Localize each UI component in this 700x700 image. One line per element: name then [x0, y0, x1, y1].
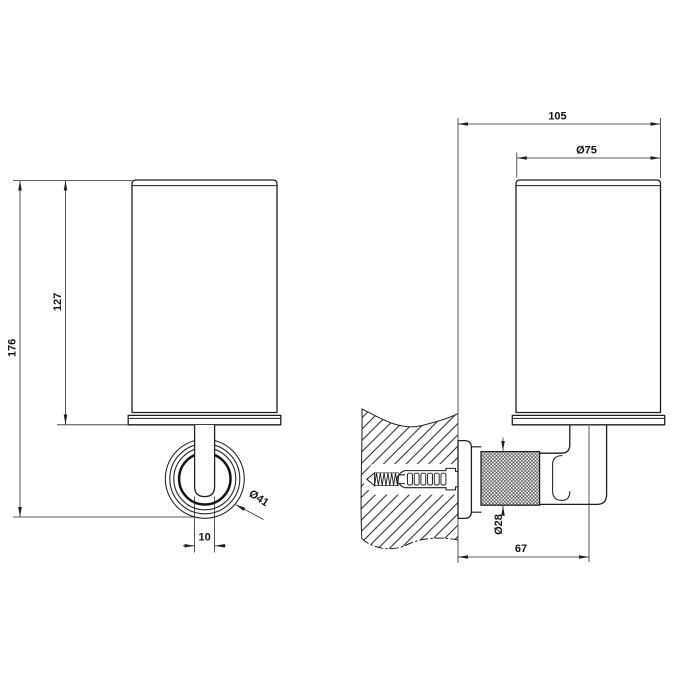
dim-label-stem-width: 10 [198, 532, 210, 544]
dim-label-overall-depth: 105 [548, 111, 566, 123]
drawing-canvas: 176 127 Ø41 10 105 Ø75 [0, 0, 700, 700]
side-view [361, 118, 665, 563]
dim-label-wall-to-axis: 67 [515, 543, 527, 555]
side-base-ring [512, 415, 664, 424]
side-arm [540, 425, 607, 504]
dim-label-cup-height: 127 [52, 293, 64, 311]
front-base-ring [128, 415, 281, 424]
dim-wall-to-axis: 67 [458, 543, 589, 557]
dim-label-overall-height: 176 [7, 339, 19, 357]
dim-label-rosette-diameter: Ø41 [247, 488, 271, 509]
front-cup-body [132, 180, 277, 413]
side-flange-collar [471, 447, 481, 512]
front-view [128, 180, 281, 518]
side-arm-inner-contour [553, 456, 570, 501]
technical-drawing: 176 127 Ø41 10 105 Ø75 [0, 0, 700, 700]
dim-cup-height: 127 [52, 181, 128, 425]
side-flange-plate [458, 441, 471, 519]
side-knurl [481, 452, 540, 506]
dim-label-knurl-diameter: Ø28 [493, 514, 505, 535]
dim-cup-diameter: Ø75 [517, 145, 661, 178]
dim-overall-depth: 105 [458, 111, 661, 179]
side-cup-body [516, 180, 661, 413]
dim-label-cup-diameter: Ø75 [576, 145, 597, 157]
front-stem [195, 425, 215, 497]
dim-rosette-diameter: Ø41 [236, 488, 271, 520]
